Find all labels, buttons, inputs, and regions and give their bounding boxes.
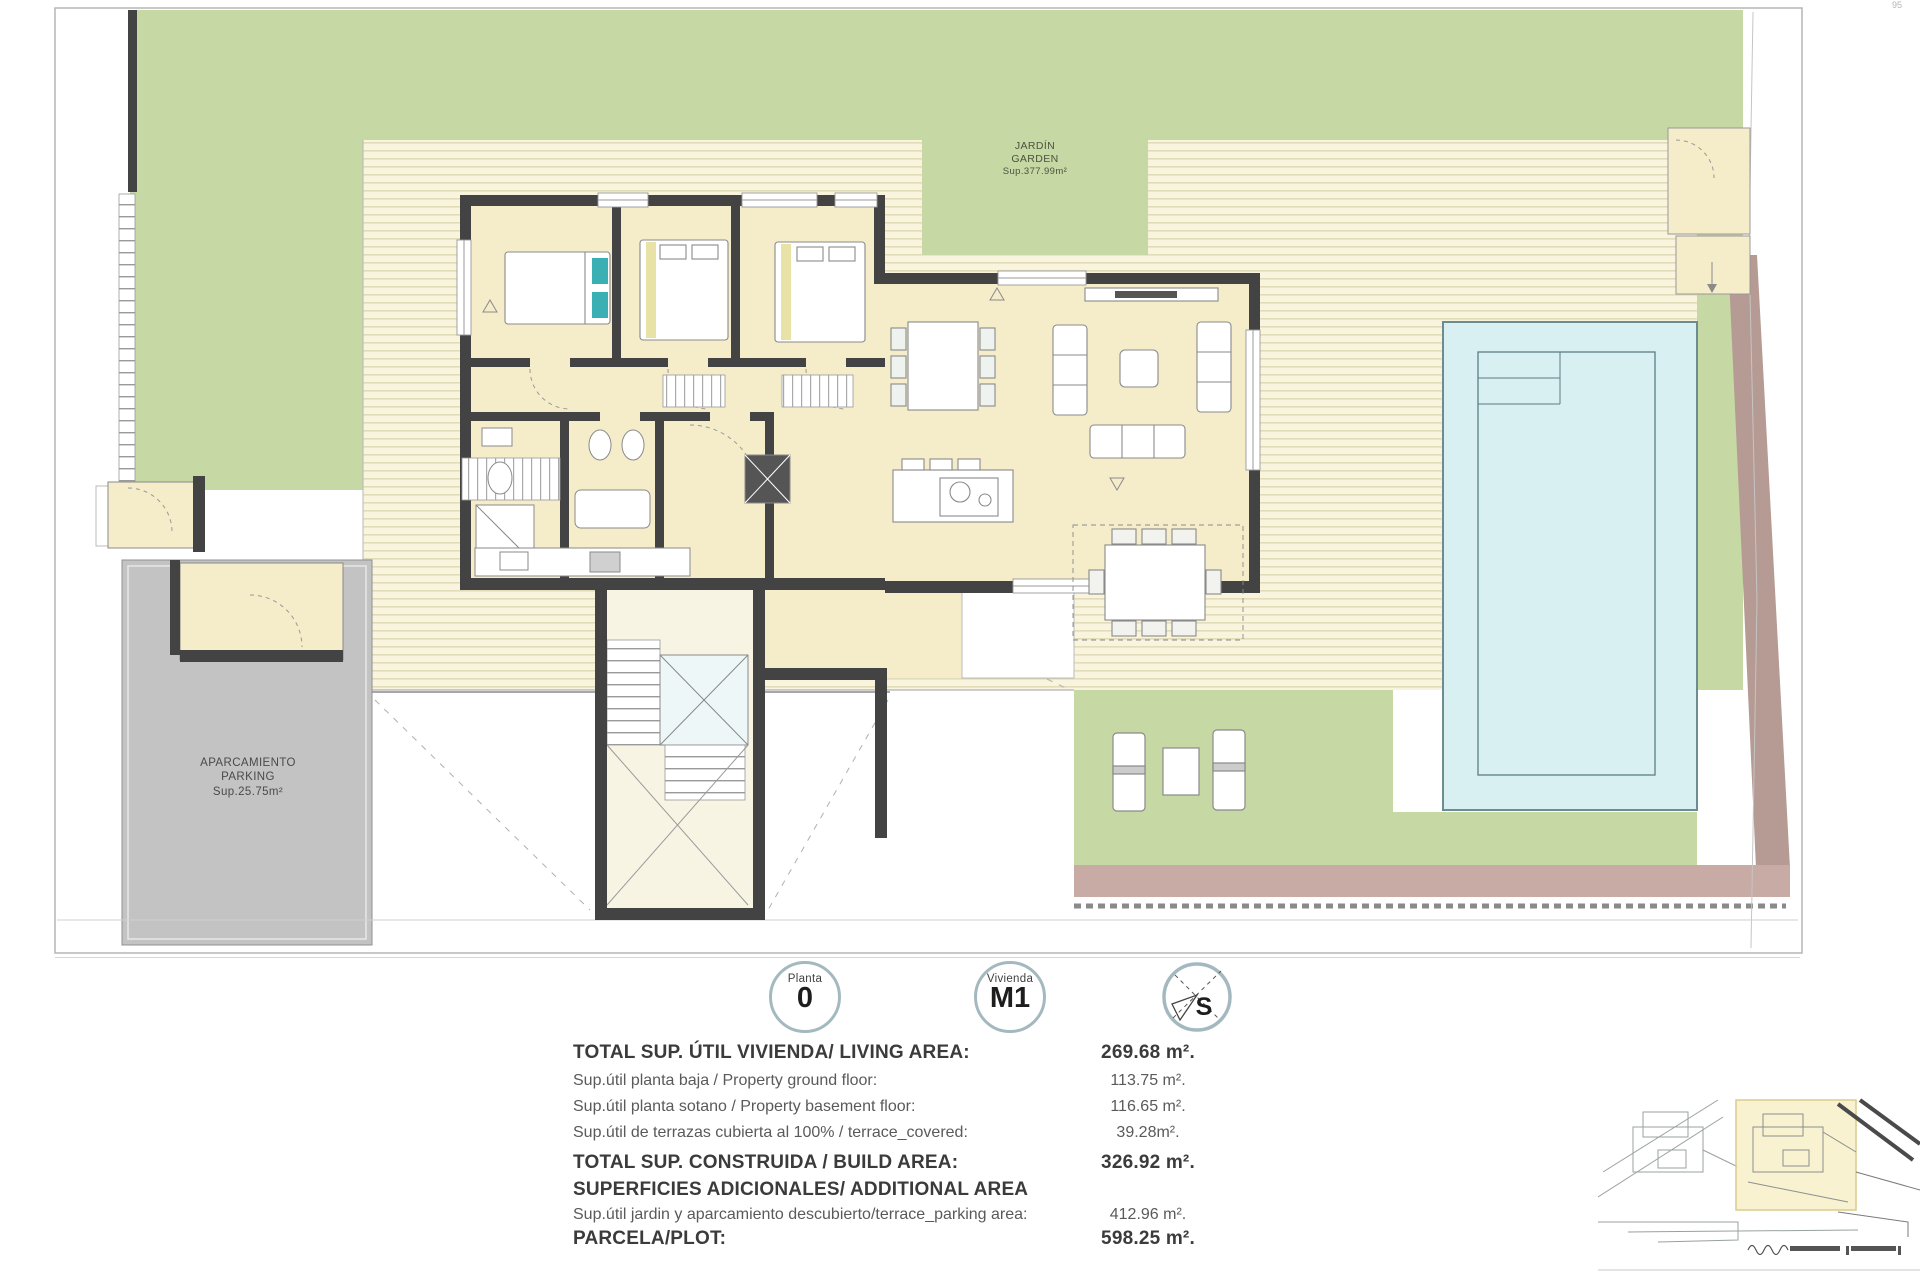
garden-label-line2: GARDEN xyxy=(975,153,1095,166)
table-row: Sup.útil jardin y aparcamiento descubier… xyxy=(573,1206,1233,1224)
garden-label-area: Sup.377.99m² xyxy=(975,166,1095,178)
area-row-value: 412.96 m². xyxy=(1073,1206,1223,1224)
table-section-header: SUPERFICIES ADICIONALES/ ADDITIONAL AREA xyxy=(573,1179,1233,1201)
swimming-pool xyxy=(1443,322,1697,810)
areas-table: TOTAL SUP. ÚTIL VIVIENDA/ LIVING AREA: 2… xyxy=(573,1042,1233,1250)
table-row: TOTAL SUP. ÚTIL VIVIENDA/ LIVING AREA: 2… xyxy=(573,1042,1233,1064)
area-row-value: 113.75 m². xyxy=(1073,1072,1223,1090)
highlight-box xyxy=(1736,1100,1856,1210)
entrance-porch xyxy=(96,476,205,552)
compass-icon: S xyxy=(1158,958,1236,1036)
parking-label: APARCAMIENTO PARKING Sup.25.75m² xyxy=(168,756,328,799)
area-row-value: 116.65 m². xyxy=(1073,1098,1223,1116)
path-strip xyxy=(1074,865,1790,897)
area-row-label: PARCELA/PLOT: xyxy=(573,1228,1073,1250)
area-row-value: 598.25 m². xyxy=(1073,1228,1223,1250)
garden-label: JARDÍN GARDEN Sup.377.99m² xyxy=(975,140,1095,178)
floor-badge: Planta 0 xyxy=(769,961,841,1033)
area-row-label: Sup.útil planta baja / Property ground f… xyxy=(573,1072,1073,1090)
unit-badge: Vivienda M1 xyxy=(974,961,1046,1033)
floor-plan-drawing xyxy=(0,0,1920,960)
floor-badge-value: 0 xyxy=(772,985,838,1011)
site-location-inset xyxy=(1598,1072,1920,1280)
area-row-label: Sup.útil de terrazas cubierta al 100% / … xyxy=(573,1124,1073,1142)
table-row: PARCELA/PLOT: 598.25 m². xyxy=(573,1228,1233,1250)
area-row-value: 326.92 m². xyxy=(1073,1152,1223,1174)
parking-area xyxy=(122,560,372,945)
area-row-value: 269.68 m². xyxy=(1073,1042,1223,1064)
parking-label-line1: APARCAMIENTO xyxy=(168,756,328,770)
parking-label-area: Sup.25.75m² xyxy=(168,785,328,799)
top-right-entry xyxy=(1668,128,1750,294)
area-row-label: TOTAL SUP. ÚTIL VIVIENDA/ LIVING AREA: xyxy=(573,1042,1073,1064)
table-row: TOTAL SUP. CONSTRUIDA / BUILD AREA: 326.… xyxy=(573,1152,1233,1174)
parking-label-line2: PARKING xyxy=(168,770,328,784)
compass-letter: S xyxy=(1196,993,1213,1021)
area-row-label: TOTAL SUP. CONSTRUIDA / BUILD AREA: xyxy=(573,1152,1073,1174)
area-row-label: Sup.útil jardin y aparcamiento descubier… xyxy=(573,1206,1073,1224)
divider-line xyxy=(55,957,1800,958)
garden-label-line1: JARDÍN xyxy=(975,140,1095,153)
area-row-label: SUPERFICIES ADICIONALES/ ADDITIONAL AREA xyxy=(573,1179,1073,1201)
stairwell xyxy=(595,578,765,920)
table-row: Sup.útil planta sotano / Property baseme… xyxy=(573,1098,1233,1116)
floor-plan-page: { "plan": { "garden_label": {"line1": "J… xyxy=(0,0,1920,1280)
table-row: Sup.útil planta baja / Property ground f… xyxy=(573,1072,1233,1090)
scale-bar xyxy=(1748,1246,1901,1256)
table-row: Sup.útil de terrazas cubierta al 100% / … xyxy=(573,1124,1233,1142)
unit-badge-value: M1 xyxy=(977,985,1043,1011)
area-row-label: Sup.útil planta sotano / Property baseme… xyxy=(573,1098,1073,1116)
sheet-corner-mark: 95 xyxy=(1892,0,1902,10)
area-row-value: 39.28m². xyxy=(1073,1124,1223,1142)
